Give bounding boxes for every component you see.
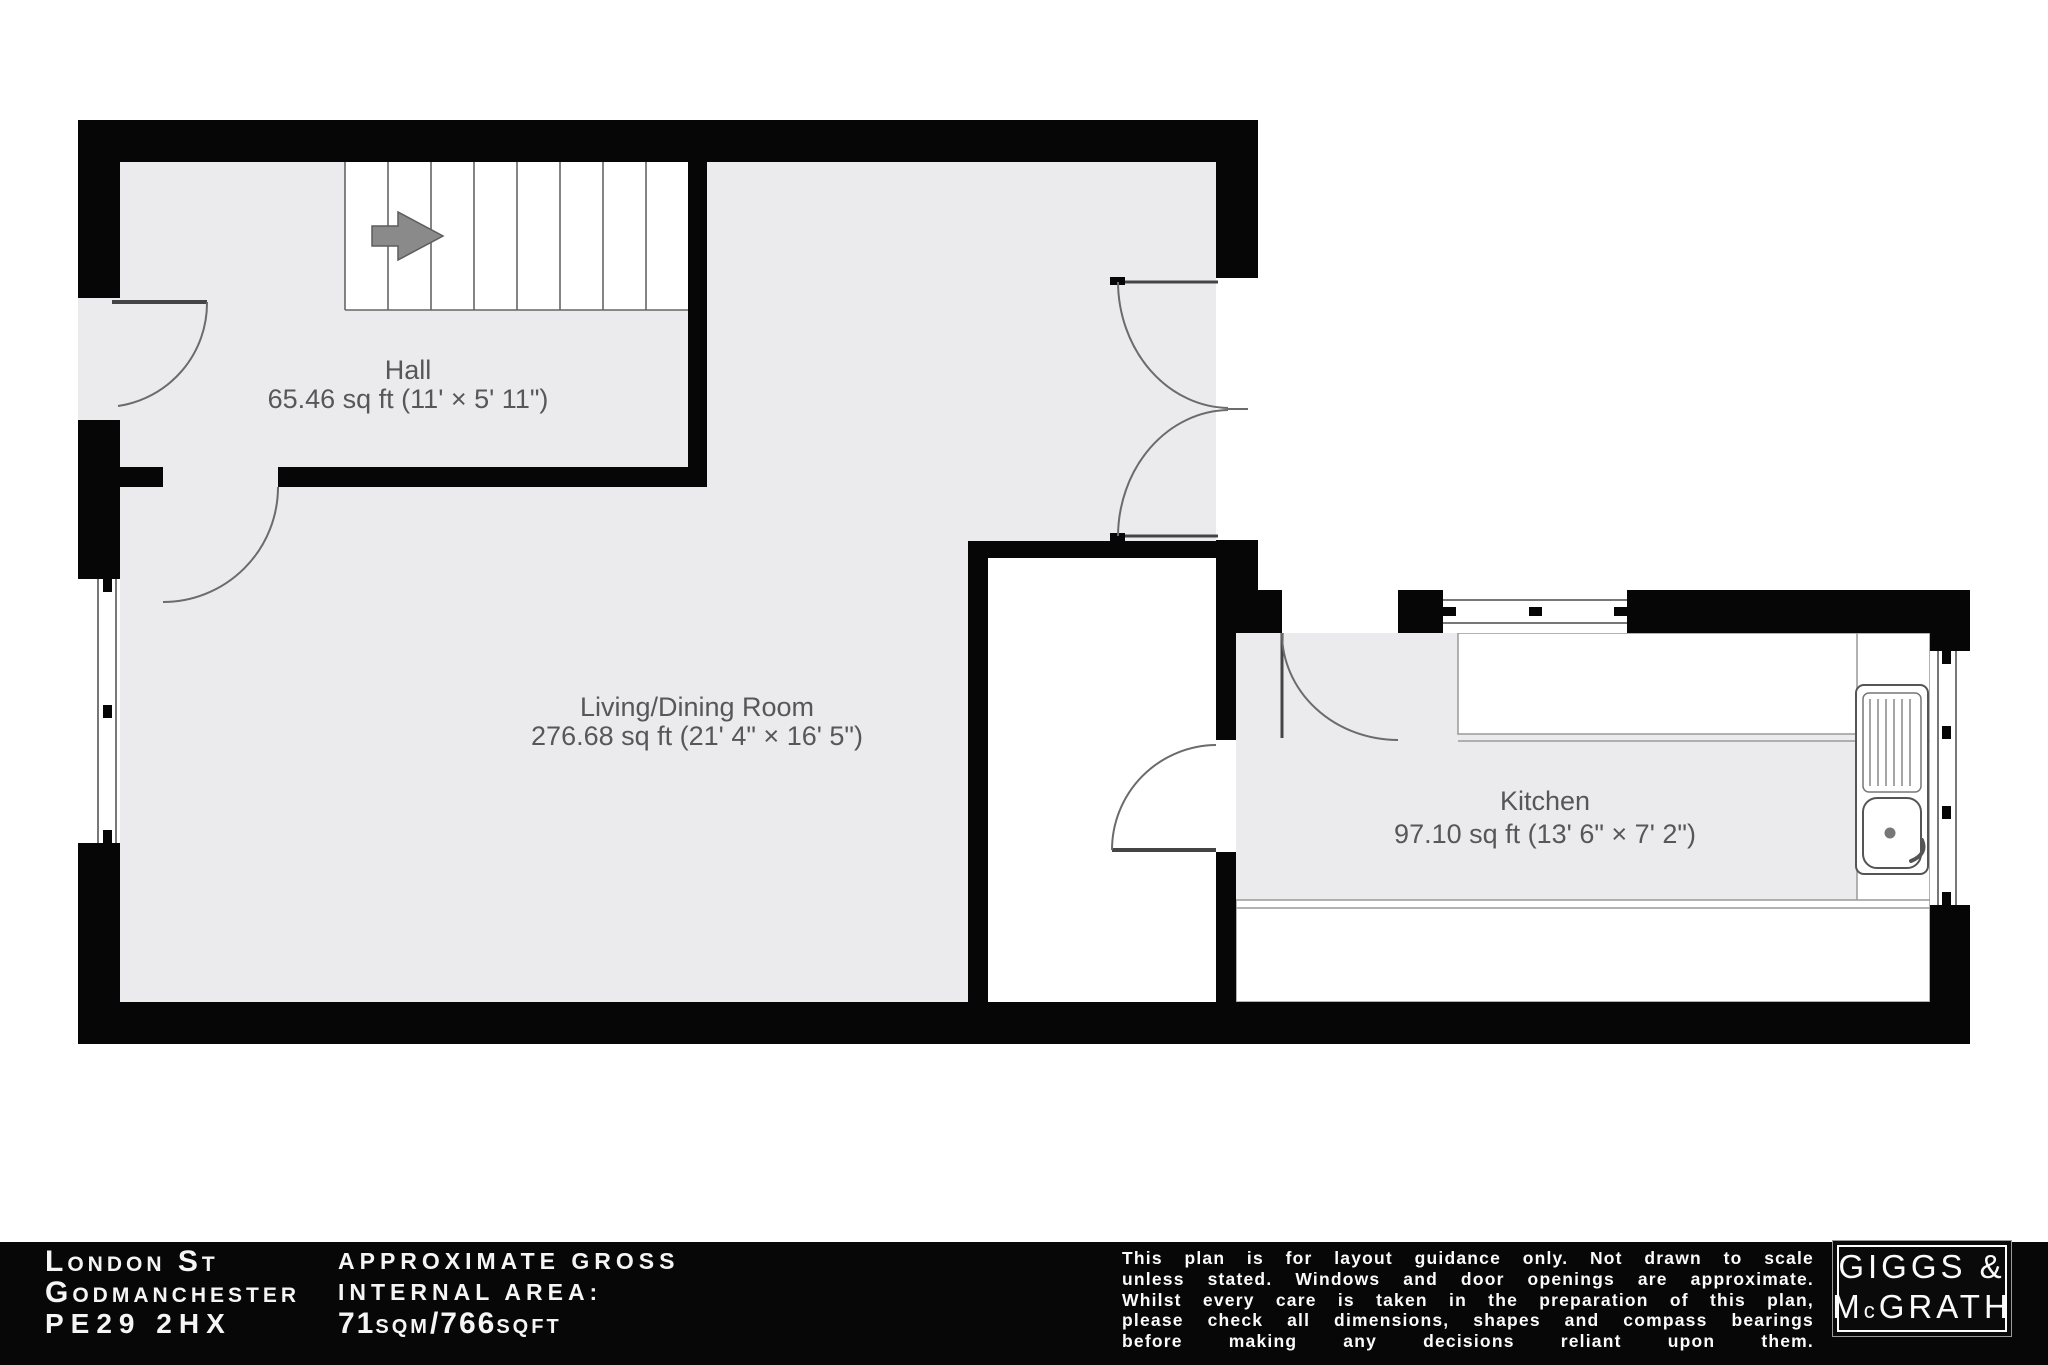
wall-kitchen-west-lower xyxy=(1216,852,1236,1002)
disclaimer-line: please check all dimensions, shapes and … xyxy=(1122,1310,1814,1331)
hall-label: Hall xyxy=(385,355,432,385)
address-line1: London St xyxy=(45,1246,300,1277)
agency-logo: GIGGS & McGRATH xyxy=(1832,1240,2012,1337)
area-caption-2: INTERNAL AREA: xyxy=(338,1277,679,1308)
address-line2: Godmanchester xyxy=(45,1277,300,1308)
area-sqm-unit: SQM xyxy=(375,1316,430,1338)
wall-bottom xyxy=(78,1002,1970,1044)
wall-kitchen-top-a xyxy=(1236,590,1282,633)
hall-area-label: 65.46 sq ft (11' × 5' 11") xyxy=(268,384,549,414)
wall-right-below-doors xyxy=(1216,540,1258,590)
sink-plug xyxy=(1885,828,1896,839)
wall-left-upper xyxy=(78,162,120,298)
wall-recess-north xyxy=(988,541,1216,558)
logo-line2: McGRATH xyxy=(1832,1287,2012,1331)
wall-recess-west xyxy=(968,541,988,1002)
logo-m: M xyxy=(1832,1288,1864,1325)
window-kitchen-top xyxy=(1443,590,1627,633)
counter-bottom xyxy=(1236,900,1930,1002)
wall-right-upper xyxy=(1216,162,1258,278)
floorplan-svg: Hall 65.46 sq ft (11' × 5' 11") Living/D… xyxy=(0,0,2048,1242)
living-label: Living/Dining Room xyxy=(580,692,814,722)
address-postcode: PE29 2HX xyxy=(45,1308,300,1339)
area-sqm-value: 71 xyxy=(338,1307,375,1340)
area-value: 71SQM/766SQFT xyxy=(338,1308,679,1344)
wall-kitchen-west-upper xyxy=(1216,590,1236,740)
wall-hall-right xyxy=(688,162,707,487)
entrance-opening-floor xyxy=(78,298,120,420)
kitchen-sink xyxy=(1856,685,1928,874)
living-area-label: 276.68 sq ft (21' 4" × 16' 5") xyxy=(531,721,863,751)
kitchen-area-label: 97.10 sq ft (13' 6" × 7' 2") xyxy=(1394,819,1696,849)
area-sqft-value: /766 xyxy=(430,1307,496,1340)
disclaimer-line: Whilst every care is taken in the prepar… xyxy=(1122,1290,1814,1311)
wall-left-mid xyxy=(78,420,120,579)
wall-hall-divider-stub xyxy=(120,467,163,487)
window-kitchen-right xyxy=(1930,651,1970,905)
disclaimer-line: unless stated. Windows and door openings… xyxy=(1122,1269,1814,1290)
logo-small-c: c xyxy=(1864,1298,1879,1323)
wall-top xyxy=(78,120,1258,162)
disclaimer-text: This plan is for layout guidance only. N… xyxy=(1122,1248,1814,1352)
footer-bar: London St Godmanchester PE29 2HX APPROXI… xyxy=(0,1242,2048,1365)
sink-drainer xyxy=(1863,693,1921,792)
logo-line1: GIGGS & xyxy=(1838,1247,2005,1287)
floorplan: Hall 65.46 sq ft (11' × 5' 11") Living/D… xyxy=(0,0,2048,1242)
rear-door xyxy=(1112,745,1216,850)
window-left xyxy=(78,579,120,843)
area-sqft-unit: SQFT xyxy=(496,1316,561,1338)
disclaimer-line: This plan is for layout guidance only. N… xyxy=(1122,1248,1814,1269)
logo-rest: GRATH xyxy=(1879,1288,2012,1325)
floorplan-page: Hall 65.46 sq ft (11' × 5' 11") Living/D… xyxy=(0,0,2048,1365)
gross-internal-area: APPROXIMATE GROSS INTERNAL AREA: 71SQM/7… xyxy=(338,1246,679,1344)
living-floor-lower xyxy=(120,541,968,1002)
property-address: London St Godmanchester PE29 2HX xyxy=(45,1246,300,1339)
wall-kitchen-top-c xyxy=(1627,590,1930,633)
staircase xyxy=(345,162,688,310)
wall-hall-divider xyxy=(278,467,707,487)
kitchen-label: Kitchen xyxy=(1500,786,1590,816)
wall-left-lower xyxy=(78,843,120,1002)
agency-logo-frame: GIGGS & McGRATH xyxy=(1837,1245,2007,1332)
disclaimer-line: before making any decisions reliant upon… xyxy=(1122,1331,1814,1352)
wall-kitchen-top-b xyxy=(1398,590,1443,633)
wall-kitchen-right-lower xyxy=(1930,905,1970,1002)
wall-kitchen-right-upper xyxy=(1930,590,1970,651)
area-caption-1: APPROXIMATE GROSS xyxy=(338,1246,679,1277)
